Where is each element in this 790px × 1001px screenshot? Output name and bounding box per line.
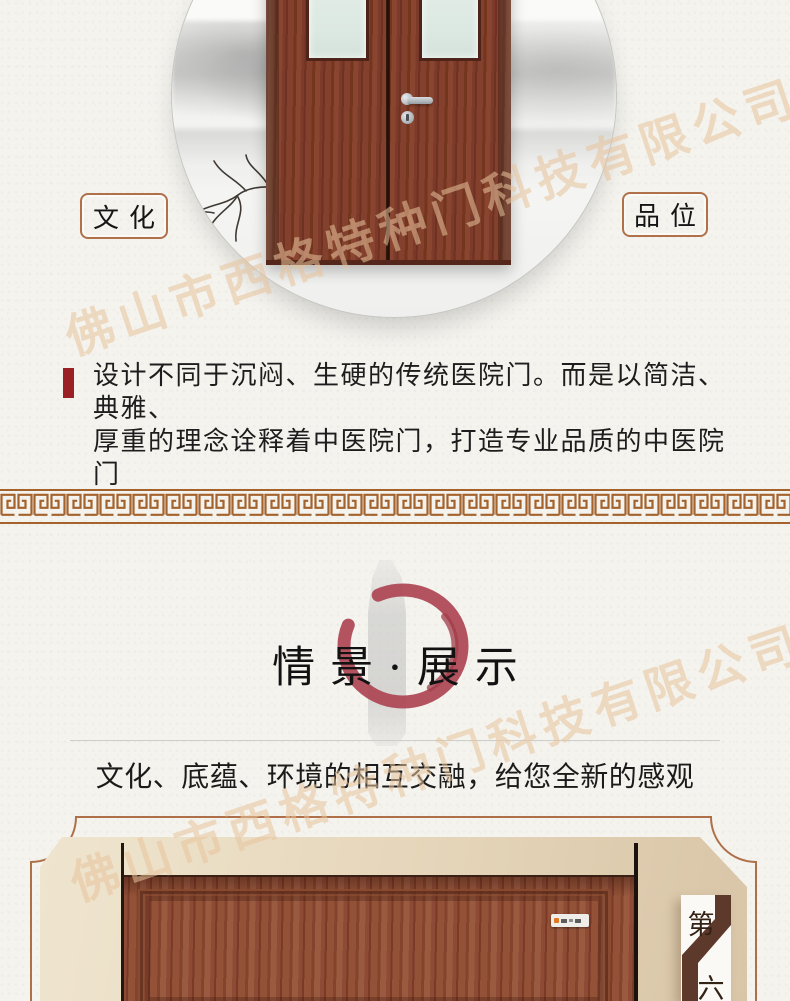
section-subtitle: 文化、底蕴、环境的相互交融，给您全新的感观 — [0, 755, 790, 795]
culture-tag-label: 文化 — [93, 198, 165, 235]
page-marker-label: 第 六 — [681, 895, 731, 1001]
plate-text-mark — [561, 919, 567, 923]
door-center-gap — [386, 0, 390, 265]
door-jamb-left — [266, 0, 279, 265]
door-jamb-right — [498, 0, 511, 265]
scene-door-photo: 第 六 — [40, 837, 747, 1001]
hero-door-photo-circle — [171, 0, 617, 318]
door-frame-post-right — [634, 843, 638, 1001]
door-panel-molding — [138, 889, 610, 1001]
plate-text-mark — [569, 919, 573, 922]
section-divider-line — [70, 740, 720, 741]
door-handle-lever-icon — [408, 97, 433, 104]
greek-key-divider — [0, 489, 790, 524]
door-glass-panel-right — [419, 0, 481, 61]
page-marker-bottom-char: 六 — [695, 967, 727, 1001]
promo-page: 文化 品位 设计不同于沉闷、生硬的传统医院门。而是以简洁、典雅、 厚重的理念诠释… — [0, 0, 790, 1001]
intro-accent-bar — [63, 368, 74, 398]
page-marker-top-char: 第 — [685, 903, 717, 942]
section-title: 情景·展示 — [0, 633, 790, 695]
taste-tag-label: 品位 — [634, 196, 706, 233]
intro-paragraph: 设计不同于沉闷、生硬的传统医院门。而是以简洁、典雅、 厚重的理念诠释着中医院门，… — [93, 360, 743, 492]
plate-text-mark — [575, 919, 581, 923]
door-lock-cylinder-icon — [401, 111, 414, 124]
double-door-image — [266, 0, 511, 265]
culture-tag: 文化 — [80, 193, 168, 239]
taste-tag: 品位 — [622, 192, 708, 237]
door-bottom-edge — [266, 260, 511, 265]
plate-logo-mark — [554, 918, 559, 923]
door-glass-panel-left — [306, 0, 369, 61]
greek-key-pattern — [0, 491, 790, 518]
door-brand-plate — [551, 914, 589, 927]
